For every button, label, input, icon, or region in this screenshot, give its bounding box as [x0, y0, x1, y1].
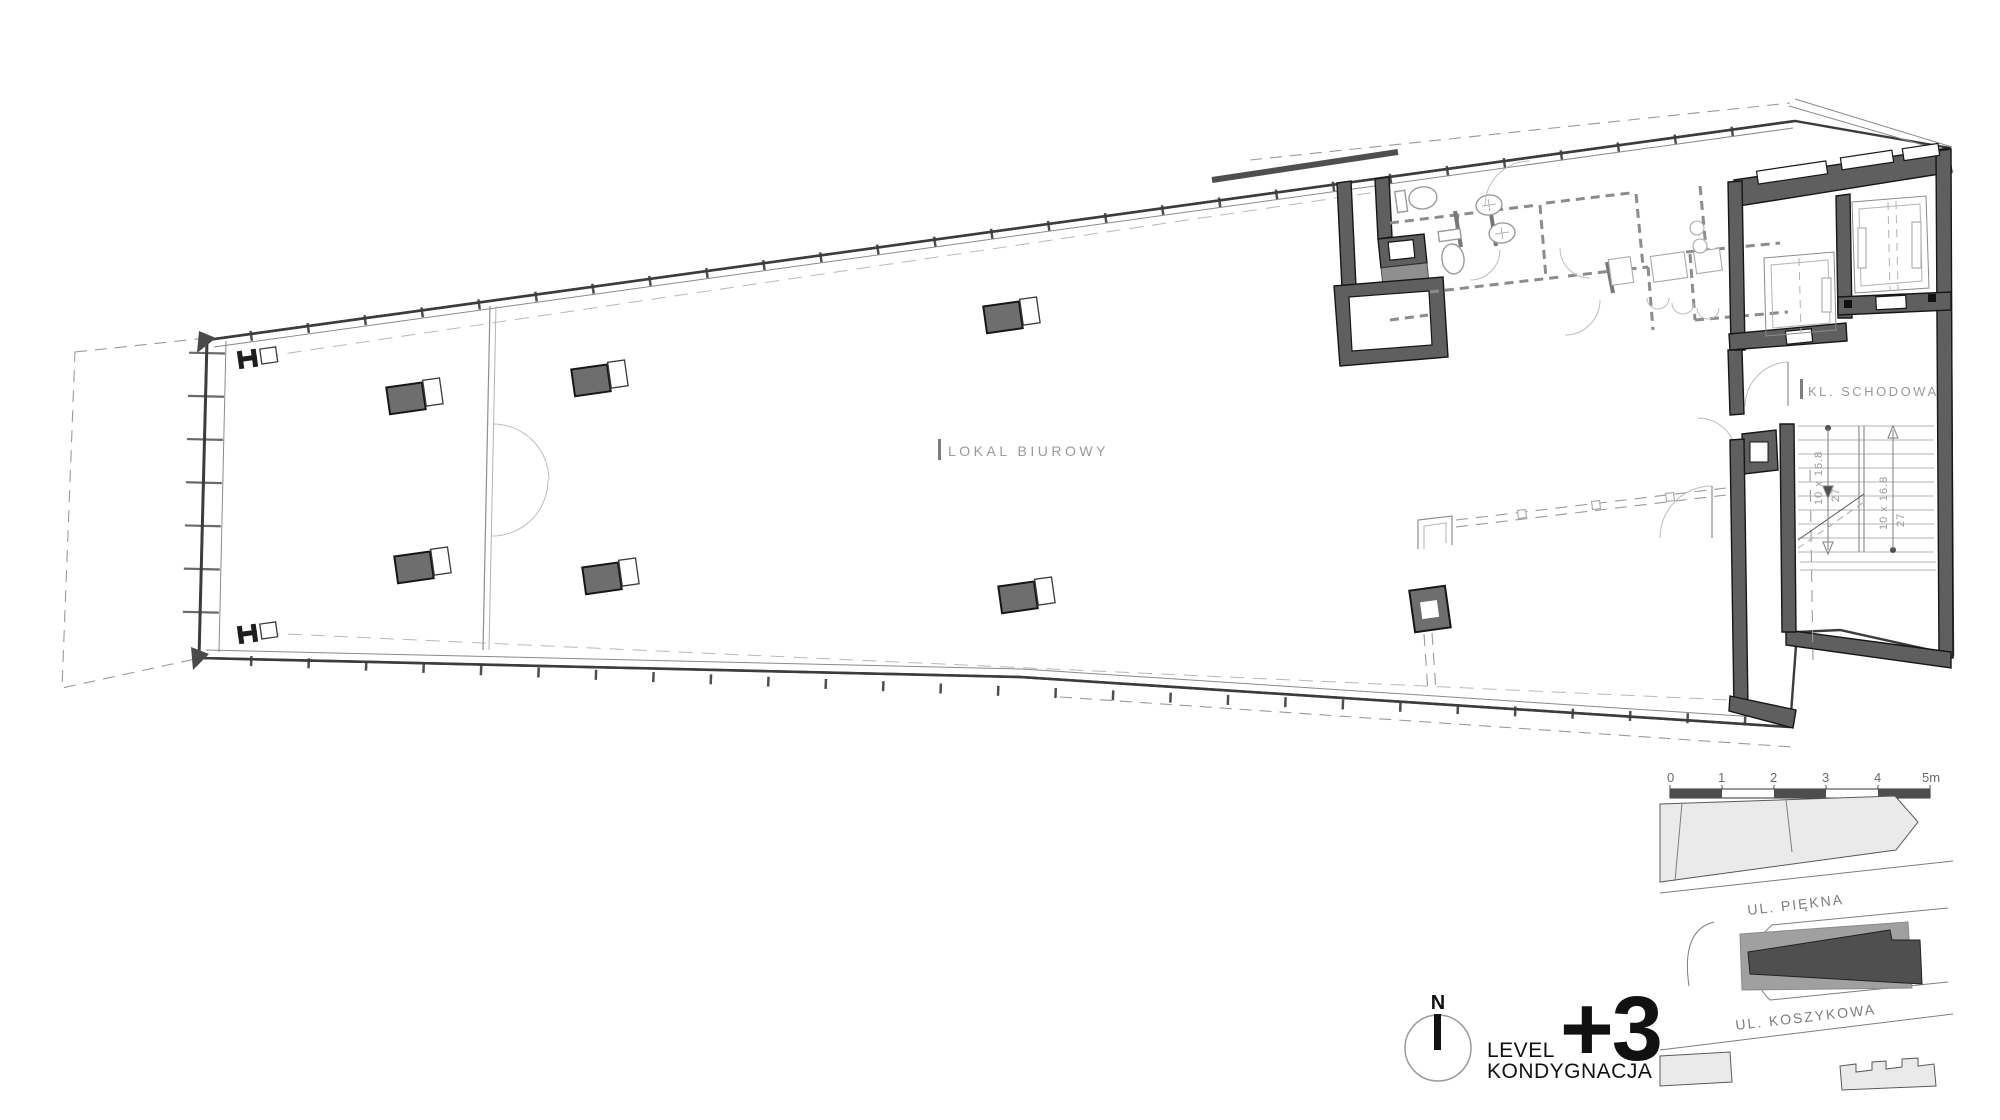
- toilet-zone-facade-wall: [1212, 152, 1398, 180]
- square-column: [1409, 586, 1450, 633]
- site-building-south-1: [1660, 1052, 1732, 1086]
- stair-tread-dim-left: 27: [1830, 488, 1842, 502]
- stair-tread-dim-right: 27: [1895, 513, 1907, 527]
- office-room-label: LOKAL BIUROWY: [938, 439, 1109, 460]
- street-label-top: UL. PIĘKNA: [1747, 891, 1845, 918]
- core-wall-right: [1936, 149, 1953, 658]
- site-location-map: UL. PIĘKNA UL. KOSZYKOWA: [1660, 796, 1953, 1090]
- scale-tick-1: 1: [1718, 770, 1725, 785]
- stair-flight-dim-left: 10 x 16.8: [1813, 451, 1825, 505]
- north-arrow: N: [1405, 992, 1471, 1081]
- scale-tick-0: 0: [1667, 770, 1674, 785]
- scale-bar: 0 1 2 3 4 5m: [1667, 770, 1940, 798]
- stair-flight-dim-right: 10 x 16.8: [1878, 476, 1890, 530]
- office-room-label-text: LOKAL BIUROWY: [948, 443, 1109, 459]
- floor-plan-drawing: LOKAL BIUROWY: [0, 0, 2000, 1120]
- stair-room-label-text: KL. SCHODOWA: [1808, 384, 1939, 399]
- building-outline: [199, 121, 1953, 727]
- scale-tick-4: 4: [1874, 770, 1881, 785]
- north-label: N: [1431, 992, 1445, 1014]
- scale-tick-2: 2: [1770, 770, 1777, 785]
- street-label-bottom: UL. KOSZYKOWA: [1735, 1001, 1877, 1033]
- floor-plan-sheet: LOKAL BIUROWY: [0, 0, 2000, 1120]
- site-building-south-2: [1840, 1058, 1936, 1090]
- level-value: +3: [1560, 978, 1661, 1080]
- scale-tick-3: 3: [1822, 770, 1829, 785]
- core-wall-left-upper: [1728, 181, 1745, 350]
- scale-tick-5: 5m: [1922, 770, 1940, 785]
- level-label-line1: LEVEL: [1487, 1039, 1555, 1062]
- building-plan: LOKAL BIUROWY: [62, 99, 1953, 747]
- roof-overhang-outline: [62, 338, 207, 688]
- title-block: N LEVEL KONDYGNACJA +3: [1405, 978, 1661, 1083]
